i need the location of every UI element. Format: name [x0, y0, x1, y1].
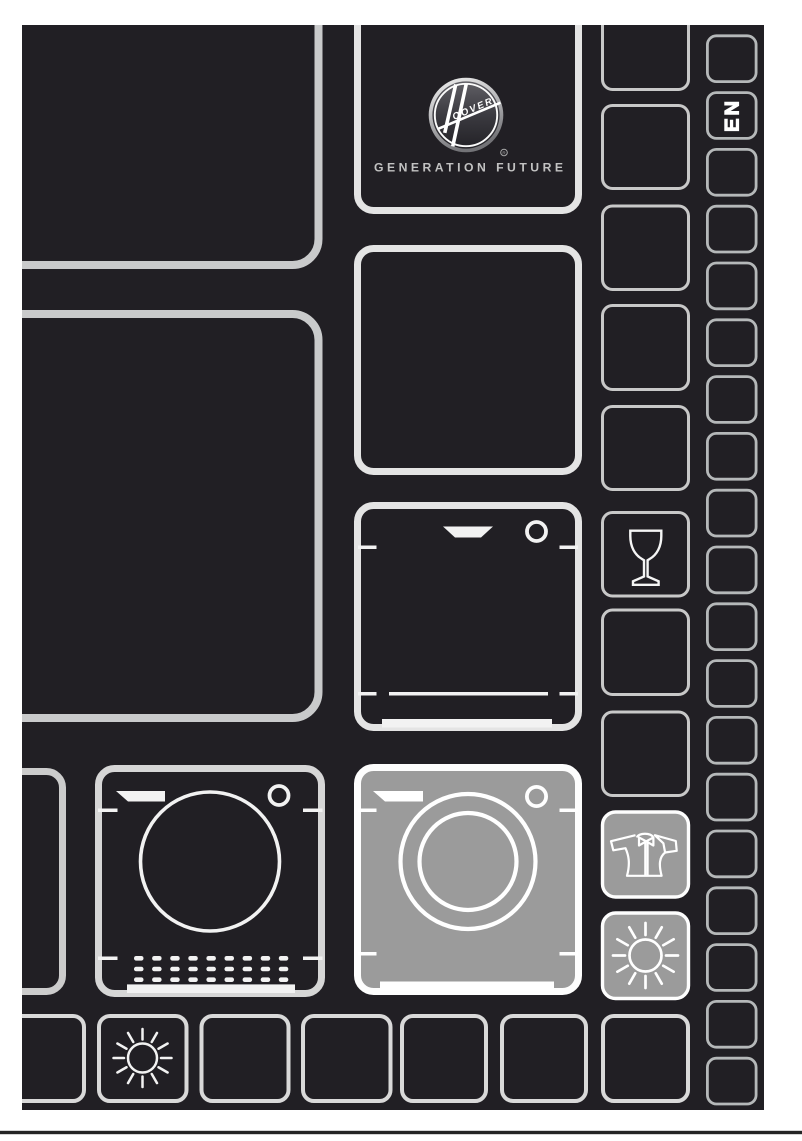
svg-text:GENERATION FUTURE: GENERATION FUTURE [374, 161, 563, 175]
